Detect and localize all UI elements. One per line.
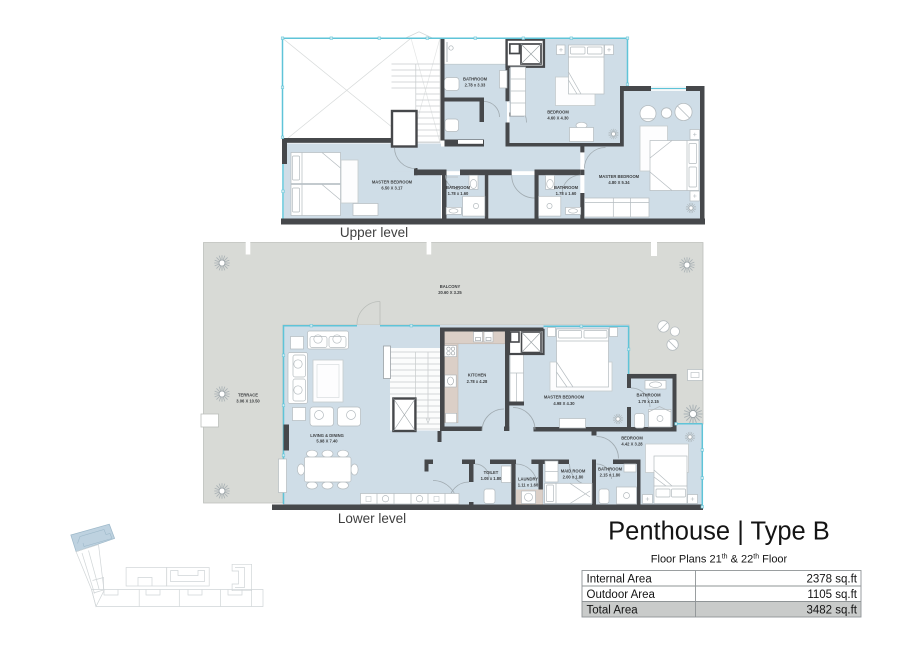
svg-text:MAID ROOM: MAID ROOM: [561, 469, 586, 474]
svg-text:BATHROOM: BATHROOM: [636, 393, 661, 398]
svg-text:Outdoor Area: Outdoor Area: [587, 589, 656, 601]
svg-text:BATHROOM: BATHROOM: [598, 467, 623, 472]
svg-text:BEDROOM: BEDROOM: [547, 109, 569, 114]
svg-text:5.98 X 7.40: 5.98 X 7.40: [316, 439, 338, 444]
svg-text:BATHROOM: BATHROOM: [446, 185, 471, 190]
svg-text:2378 sq.ft: 2378 sq.ft: [806, 573, 857, 585]
svg-text:BALCONY: BALCONY: [440, 284, 461, 289]
svg-text:3.06 X 10.50: 3.06 X 10.50: [236, 399, 260, 404]
svg-text:4.80 X 5.34: 4.80 X 5.34: [608, 180, 630, 185]
svg-text:LIVING & DINING: LIVING & DINING: [310, 433, 344, 438]
svg-text:1.11 x 1.60: 1.11 x 1.60: [518, 483, 539, 488]
svg-text:2.00 x 1.80: 2.00 x 1.80: [563, 475, 584, 480]
svg-text:1.78 x 1.60: 1.78 x 1.60: [556, 191, 577, 196]
svg-text:TERRACE: TERRACE: [238, 393, 258, 398]
svg-text:TOILET: TOILET: [484, 470, 499, 475]
svg-text:Total Area: Total Area: [587, 604, 639, 616]
svg-text:20.60 X 3.25: 20.60 X 3.25: [438, 290, 462, 295]
svg-text:KITCHEN: KITCHEN: [468, 373, 486, 378]
svg-text:3482 sq.ft: 3482 sq.ft: [806, 604, 857, 616]
svg-text:BATHROOM: BATHROOM: [554, 185, 579, 190]
svg-text:Upper level: Upper level: [340, 225, 408, 240]
svg-text:Lower level: Lower level: [338, 511, 406, 526]
svg-text:LAUNDRY: LAUNDRY: [518, 477, 538, 482]
svg-text:1105 sq.ft: 1105 sq.ft: [807, 589, 857, 601]
svg-text:4.60 X 4.30: 4.60 X 4.30: [547, 116, 569, 121]
svg-text:Floor Plans 21th & 22th Floor: Floor Plans 21th & 22th Floor: [651, 554, 788, 566]
svg-text:2.78 x 4.28: 2.78 x 4.28: [467, 379, 488, 384]
svg-text:6.50 X 3.17: 6.50 X 3.17: [381, 186, 403, 191]
svg-text:MASTER BEDROOM: MASTER BEDROOM: [544, 395, 585, 400]
svg-text:Penthouse | Type B: Penthouse | Type B: [608, 518, 830, 546]
svg-text:1.78 x 1.60: 1.78 x 1.60: [448, 191, 469, 196]
svg-text:BEDROOM: BEDROOM: [621, 436, 643, 441]
svg-text:4.98 X 4.30: 4.98 X 4.30: [553, 401, 575, 406]
svg-text:4.42 X 3.28: 4.42 X 3.28: [621, 442, 643, 447]
svg-text:MASTER BEDROOM: MASTER BEDROOM: [599, 174, 640, 179]
svg-text:MASTER BEDROOM: MASTER BEDROOM: [372, 180, 413, 185]
svg-text:Internal Area: Internal Area: [587, 573, 653, 585]
svg-text:2.78 x 3.33: 2.78 x 3.33: [465, 83, 486, 88]
svg-text:1.70 x 2.15: 1.70 x 2.15: [638, 399, 659, 404]
svg-text:2.15 x 1.80: 2.15 x 1.80: [600, 473, 621, 478]
svg-text:BATHROOM: BATHROOM: [463, 76, 488, 81]
svg-text:1.05 x 1.80: 1.05 x 1.80: [481, 476, 502, 481]
